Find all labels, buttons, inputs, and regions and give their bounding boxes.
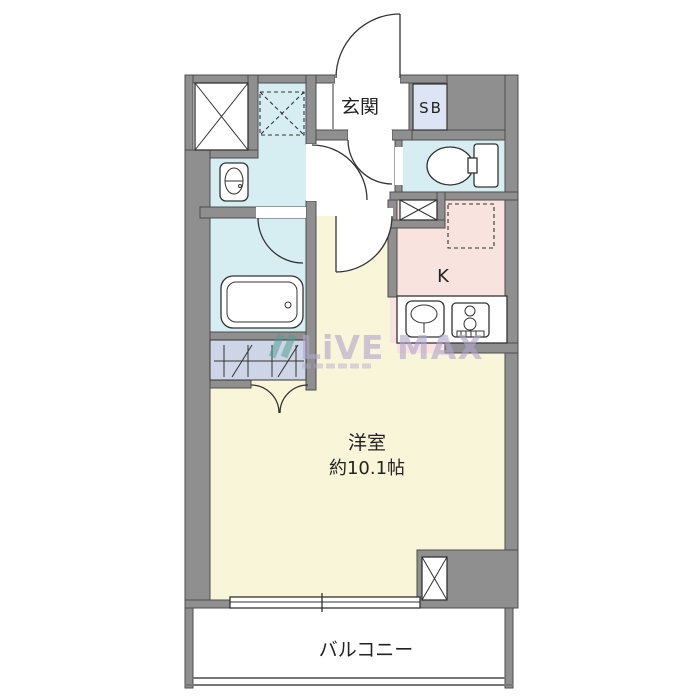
balcony-label: バルコニー — [319, 639, 414, 661]
floor-plan-svg: 玄関 SB K 洋室 約10.1帖 バルコニー LiVE MAX — [0, 0, 700, 700]
duct-space-bottom — [422, 557, 447, 600]
main-room-label: 洋室 — [348, 432, 386, 454]
washroom-door-opening — [306, 144, 317, 201]
room-door-opening — [335, 208, 393, 217]
kitchen-label: K — [437, 266, 450, 287]
main-room-size-label: 約10.1帖 — [329, 458, 405, 479]
balcony-edge — [185, 678, 513, 685]
corridor-floor — [316, 140, 395, 216]
washbasin-icon — [220, 163, 248, 201]
watermark: LiVE MAX — [272, 328, 484, 367]
bathtub-icon — [221, 276, 303, 328]
shoe-box-label: SB — [419, 99, 443, 117]
bathroom-door-opening — [256, 207, 306, 218]
duct-space-kitchen — [400, 200, 437, 220]
washroom-floor-upper — [258, 83, 306, 158]
watermark-text: LiVE MAX — [300, 328, 484, 367]
duct-space-top-left — [195, 83, 248, 150]
floor-plan-page: 玄関 SB K 洋室 約10.1帖 バルコニー LiVE MAX — [0, 0, 700, 700]
entrance-label: 玄関 — [341, 96, 379, 118]
hall-door-opening — [348, 130, 392, 141]
toilet-door-opening — [395, 147, 403, 185]
entrance-opening — [335, 75, 400, 84]
toilet-icon — [427, 144, 498, 187]
entrance-door-arc — [336, 14, 400, 78]
